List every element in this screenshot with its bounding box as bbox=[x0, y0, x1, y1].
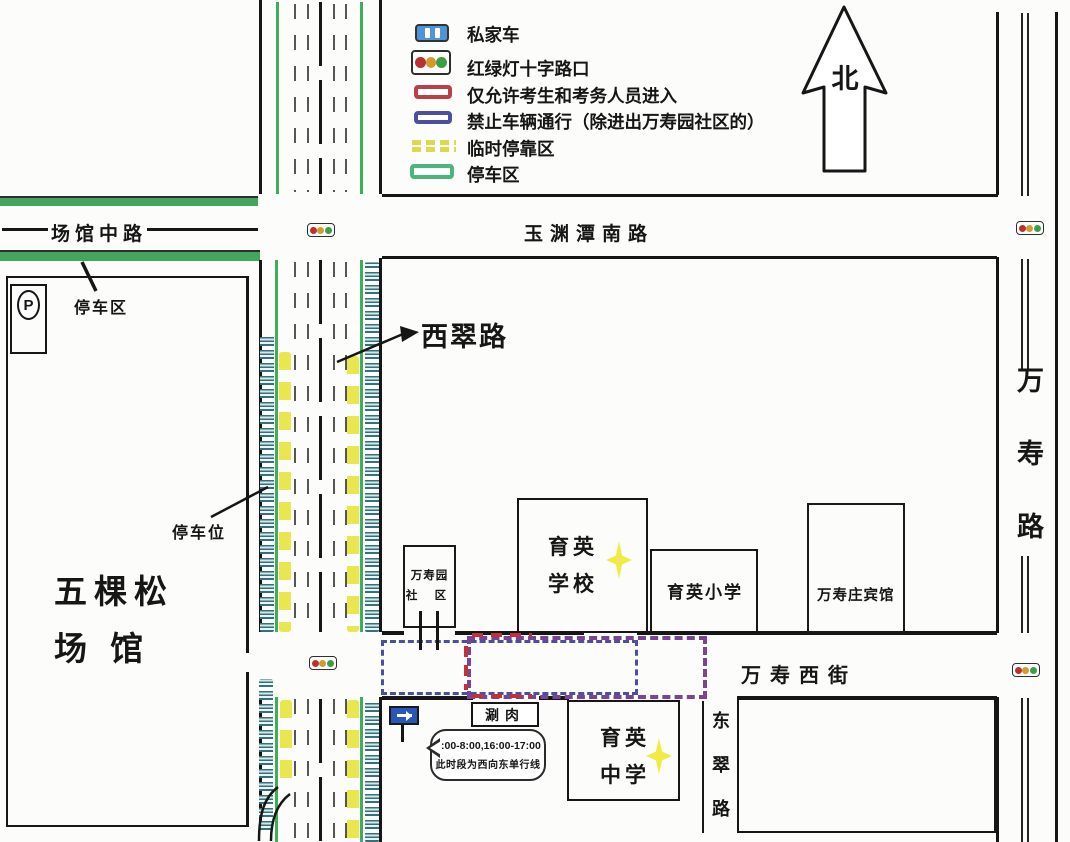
xicui-green-line bbox=[276, 2, 279, 194]
wanshou-center-line bbox=[1021, 698, 1029, 842]
traffic-light-icon bbox=[1016, 221, 1044, 235]
red-zone-swatch bbox=[414, 85, 452, 99]
parking-p-symbol: P bbox=[17, 290, 40, 320]
yuying-middle-name-line2: 中学 bbox=[600, 759, 650, 789]
note-line1: 7:00-8:00,16:00-17:00 bbox=[432, 740, 544, 752]
examinee-only-zone-rect bbox=[467, 636, 707, 699]
traffic-light-icon bbox=[309, 656, 337, 670]
car-window bbox=[425, 28, 430, 38]
road-label-dongcui: 东翠路 bbox=[707, 711, 733, 842]
yellow-zone-swatch bbox=[412, 138, 456, 154]
wanshou-center-line bbox=[1021, 13, 1029, 196]
legend-label-no-vehicles: 禁止车辆通行（除进出万寿园社区的） bbox=[467, 109, 765, 134]
parking-zone-bar-north bbox=[0, 196, 258, 206]
road-label-wanshou-west: 万寿西街 bbox=[741, 659, 857, 688]
shuanrou-name: 涮肉 bbox=[485, 705, 525, 725]
wanshou-border bbox=[1055, 12, 1058, 842]
parking-area-label: 停车区 bbox=[74, 294, 128, 318]
red-light-dot bbox=[415, 57, 426, 68]
road-label-wanshou: 万寿路 bbox=[1009, 366, 1048, 585]
traffic-light-icon bbox=[1012, 663, 1040, 677]
yellow-dash-row bbox=[412, 147, 456, 152]
wanshouzhuang-hotel-name: 万寿庄宾馆 bbox=[817, 584, 895, 605]
xicui-green-line bbox=[360, 2, 363, 194]
examinee-zone-red-edge bbox=[464, 646, 468, 690]
green-zone-swatch bbox=[410, 164, 454, 179]
one-way-arrow bbox=[397, 714, 412, 717]
road-label-yuyuantan-south: 玉渊潭南路 bbox=[524, 219, 654, 246]
note-line2: 此时段为西向东单行线 bbox=[432, 756, 544, 771]
legend-label-temporary-stop: 临时停靠区 bbox=[467, 136, 555, 161]
wanshouyuan-name-line2: 社 区 bbox=[405, 587, 454, 603]
parked-cars-column bbox=[365, 700, 379, 842]
examinee-zone-red-edge bbox=[472, 694, 532, 698]
examinee-zone-red-edge bbox=[472, 633, 532, 637]
building-yuying-school bbox=[517, 498, 648, 633]
changguan-label-line-right bbox=[147, 228, 258, 231]
blue-zone-swatch bbox=[414, 111, 452, 124]
xicui-border bbox=[379, 258, 382, 632]
parked-cars-column bbox=[259, 679, 273, 830]
changguan-label-line-left bbox=[2, 228, 48, 231]
parking-zone-bar-south bbox=[0, 250, 260, 261]
xicui-border bbox=[379, 0, 382, 194]
traffic-light-icon bbox=[307, 223, 335, 237]
one-way-note-bubble: 7:00-8:00,16:00-17:00 此时段为西向东单行线 bbox=[430, 729, 546, 781]
yuying-primary-name: 育英小学 bbox=[667, 578, 743, 603]
turn-lane-curve bbox=[271, 794, 290, 841]
lane-marking bbox=[294, 262, 296, 632]
yuying-school-name-line1: 育英 bbox=[548, 531, 598, 561]
parking-spots-label: 停车位 bbox=[172, 519, 226, 543]
xicui-border bbox=[259, 0, 262, 194]
wanshou-border bbox=[996, 697, 999, 842]
legend-label-parking-area: 停车区 bbox=[467, 162, 520, 187]
legend-label-private-car: 私家车 bbox=[467, 22, 520, 47]
xicui-green-line bbox=[275, 697, 278, 842]
lane-marking bbox=[307, 4, 309, 192]
xicui-center-line bbox=[319, 260, 322, 632]
car-icon bbox=[415, 24, 449, 42]
lane-marking bbox=[333, 4, 335, 192]
community-gate-post bbox=[419, 611, 422, 650]
xicui-green-line bbox=[360, 697, 363, 842]
xicui-pointer-arrowhead bbox=[400, 326, 419, 342]
community-gate-post bbox=[436, 611, 439, 650]
lane-marking bbox=[333, 699, 335, 840]
wukesong-name-line1: 五棵松 bbox=[54, 565, 174, 613]
wukesong-right-edge-lower bbox=[246, 672, 249, 827]
lane-marking bbox=[307, 699, 309, 840]
xicui-center-line bbox=[319, 2, 322, 194]
legend-label-traffic-light: 红绿灯十字路口 bbox=[467, 56, 590, 81]
lane-marking bbox=[294, 699, 296, 840]
wanshou-center-line bbox=[1021, 259, 1029, 370]
temporary-stop-strip bbox=[347, 700, 359, 840]
lane-marking bbox=[294, 4, 296, 192]
one-way-sign-post bbox=[401, 725, 404, 742]
yuying-middle-name-line1: 育英 bbox=[600, 722, 650, 752]
lane-marking bbox=[345, 4, 347, 192]
wukesong-right-edge-upper bbox=[246, 276, 249, 653]
wanshou-border bbox=[996, 12, 999, 195]
wukesong-venue-block bbox=[6, 276, 248, 827]
yuying-school-name-line2: 学校 bbox=[548, 568, 598, 598]
xicui-center-line bbox=[319, 699, 322, 842]
southeast-block bbox=[737, 698, 996, 833]
building-wanshouzhuang-hotel bbox=[807, 503, 905, 633]
parking-p-box: P bbox=[10, 284, 47, 354]
yuyuantan-road-north-edge bbox=[382, 194, 998, 197]
wanshou-west-south-edge bbox=[382, 696, 473, 700]
green-light-dot bbox=[436, 57, 447, 68]
xicui-border bbox=[379, 697, 382, 842]
building-wanshouyuan-community: 万寿园 社 区 bbox=[403, 545, 456, 628]
dongcui-road-edge bbox=[702, 701, 704, 833]
legend-label-examinee-only: 仅允许考生和考务人员进入 bbox=[467, 83, 677, 108]
wukesong-name-line2: 场 馆 bbox=[54, 622, 150, 670]
yellow-dash-row bbox=[412, 140, 456, 145]
wanshou-border bbox=[996, 257, 999, 633]
temporary-stop-strip bbox=[347, 356, 359, 632]
shuanrou-restaurant-box: 涮肉 bbox=[471, 702, 539, 727]
temporary-stop-strip bbox=[279, 352, 291, 632]
xicui-green-line bbox=[360, 260, 363, 632]
north-arrow: 北 bbox=[798, 4, 890, 174]
car-window bbox=[435, 28, 440, 38]
one-way-sign-icon bbox=[389, 706, 419, 725]
parked-cars-column bbox=[260, 336, 274, 632]
parked-cars-column bbox=[365, 262, 379, 632]
temporary-stop-strip bbox=[280, 700, 292, 786]
road-label-xicui: 西翠路 bbox=[421, 315, 508, 354]
north-label: 北 bbox=[832, 64, 859, 94]
wanshouyuan-name-line1: 万寿园 bbox=[405, 567, 454, 583]
road-label-changguan-middle: 场馆中路 bbox=[51, 219, 147, 246]
xicui-green-line bbox=[275, 260, 278, 632]
yellow-light-dot bbox=[426, 57, 437, 68]
wanshou-west-north-edge bbox=[382, 631, 404, 635]
lane-marking bbox=[333, 262, 335, 632]
lane-marking bbox=[307, 262, 309, 632]
exam-traffic-map: 私家车 红绿灯十字路口 仅允许考生和考务人员进入 禁止车辆通行（除进出万寿园社区… bbox=[0, 0, 1070, 842]
traffic-light-icon bbox=[411, 50, 451, 75]
yuyuantan-road-south-edge bbox=[382, 256, 997, 259]
